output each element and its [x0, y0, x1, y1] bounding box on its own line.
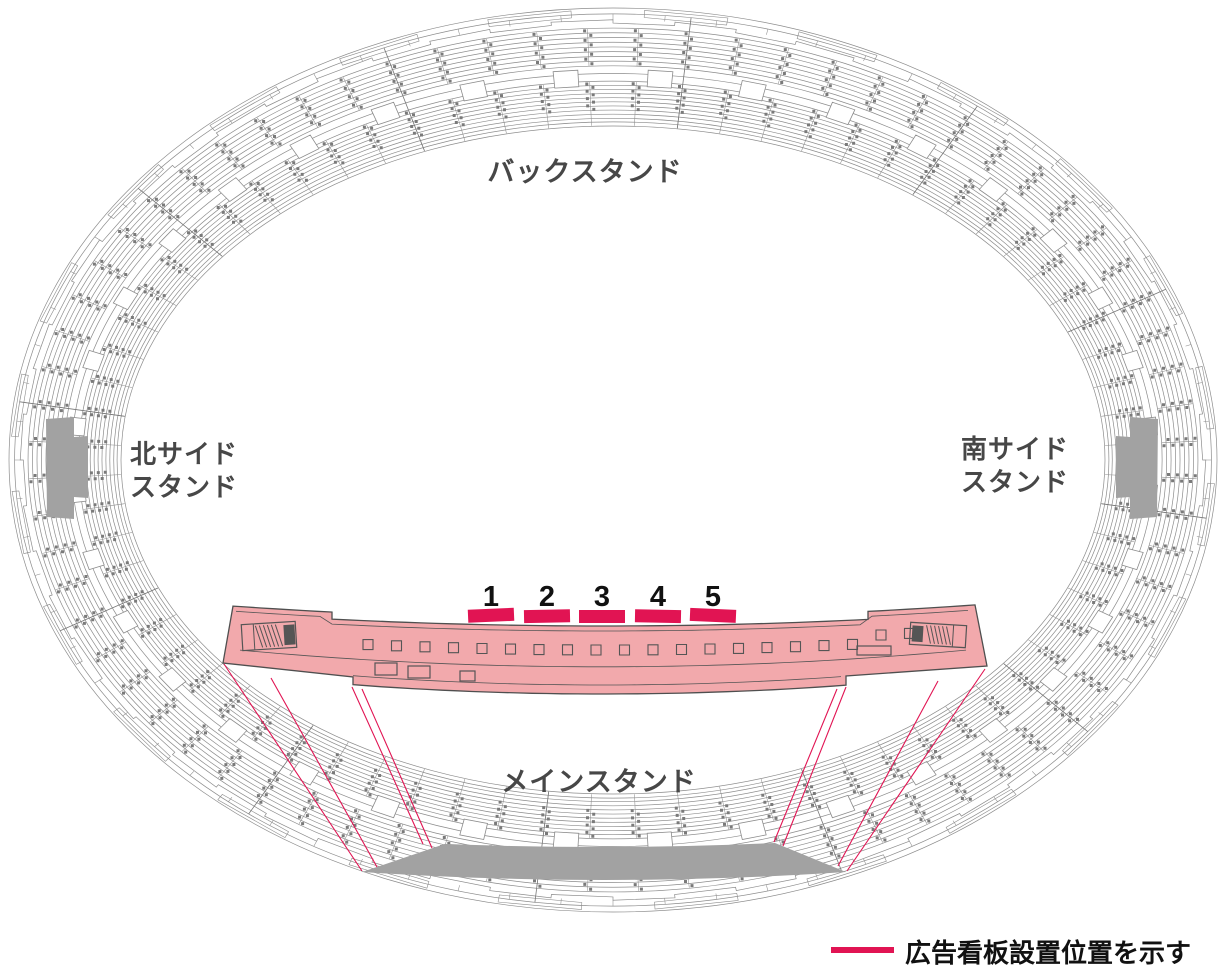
billboard-number-5: 5 — [695, 581, 731, 614]
billboard-number-2: 2 — [529, 581, 565, 614]
stadium-plan-diagram: バックスタンド 北サイド スタンド 南サイド スタンド メインスタンド 1 2 … — [0, 0, 1226, 969]
south-side-stand-label: 南サイド スタンド — [934, 433, 1096, 499]
north-side-stand-label-line1: 北サイド — [103, 438, 265, 471]
billboard-number-1: 1 — [473, 581, 509, 614]
south-side-stand-label-line2: スタンド — [934, 466, 1096, 499]
north-side-stand-label-line2: スタンド — [103, 471, 265, 504]
south-side-stand-label-line1: 南サイド — [934, 433, 1096, 466]
billboard-number-3: 3 — [584, 581, 620, 614]
back-stand-label: バックスタンド — [453, 150, 717, 189]
billboard-number-4: 4 — [640, 581, 676, 614]
north-side-stand-label: 北サイド スタンド — [103, 438, 265, 504]
main-stand-label: メインスタンド — [467, 760, 731, 799]
